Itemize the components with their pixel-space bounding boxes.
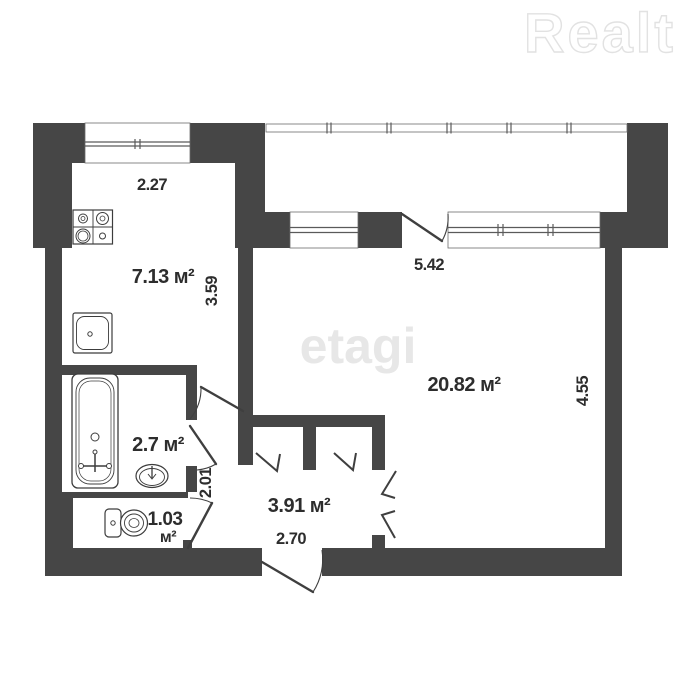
- toilet-door-icon: [188, 498, 212, 548]
- toilet-area-unit: м²: [160, 529, 176, 546]
- toilet-area-value: 1.03: [148, 509, 183, 530]
- stove-icon: [73, 210, 113, 244]
- realt-logo-watermark: Realt: [524, 1, 676, 64]
- kitchen-width-dim: 2.27: [137, 176, 167, 194]
- hallway-width-dim: 2.70: [276, 530, 306, 548]
- kitchen-sink-icon: [73, 313, 112, 353]
- balcony-glazing-icon: [266, 123, 627, 134]
- living-room-opening-icon: [382, 471, 396, 538]
- bathroom-depth-dim: 2.01: [197, 468, 215, 498]
- kitchen-door-icon: [190, 387, 243, 419]
- floor-plan: Realt etagi: [0, 0, 700, 700]
- living-room-depth-dim: 4.55: [574, 376, 592, 406]
- living-room-window-right-icon: [448, 212, 600, 248]
- bathtub-icon: [72, 374, 118, 488]
- bathroom-area-label: 2.7 м²: [132, 434, 185, 456]
- entrance-door-icon: [262, 550, 323, 592]
- toilet-icon: [105, 509, 148, 537]
- wash-basin-icon: [136, 465, 168, 488]
- bathroom-door-icon: [190, 426, 216, 470]
- kitchen-depth-dim: 3.59: [203, 276, 221, 306]
- kitchen-window-icon: [85, 123, 190, 163]
- living-room-width-dim: 5.42: [414, 256, 444, 274]
- etagi-watermark: etagi: [300, 318, 417, 374]
- living-room-area-label: 20.82 м²: [427, 374, 501, 396]
- living-room-window-left-icon: [290, 212, 358, 248]
- hallway-area-label: 3.91 м²: [268, 495, 331, 517]
- floor-plan-page: Realt etagi: [0, 0, 700, 700]
- kitchen-area-label: 7.13 м²: [132, 266, 195, 288]
- balcony-door-icon: [402, 214, 448, 241]
